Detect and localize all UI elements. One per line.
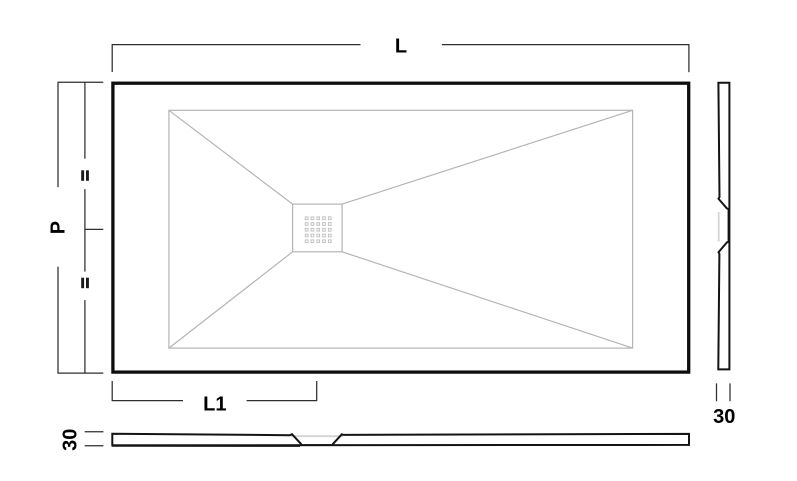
svg-text:L1: L1 — [203, 393, 226, 415]
svg-text:30: 30 — [713, 406, 735, 428]
svg-text:30: 30 — [60, 429, 82, 451]
svg-text:P: P — [47, 221, 69, 234]
svg-text:L: L — [395, 35, 407, 57]
